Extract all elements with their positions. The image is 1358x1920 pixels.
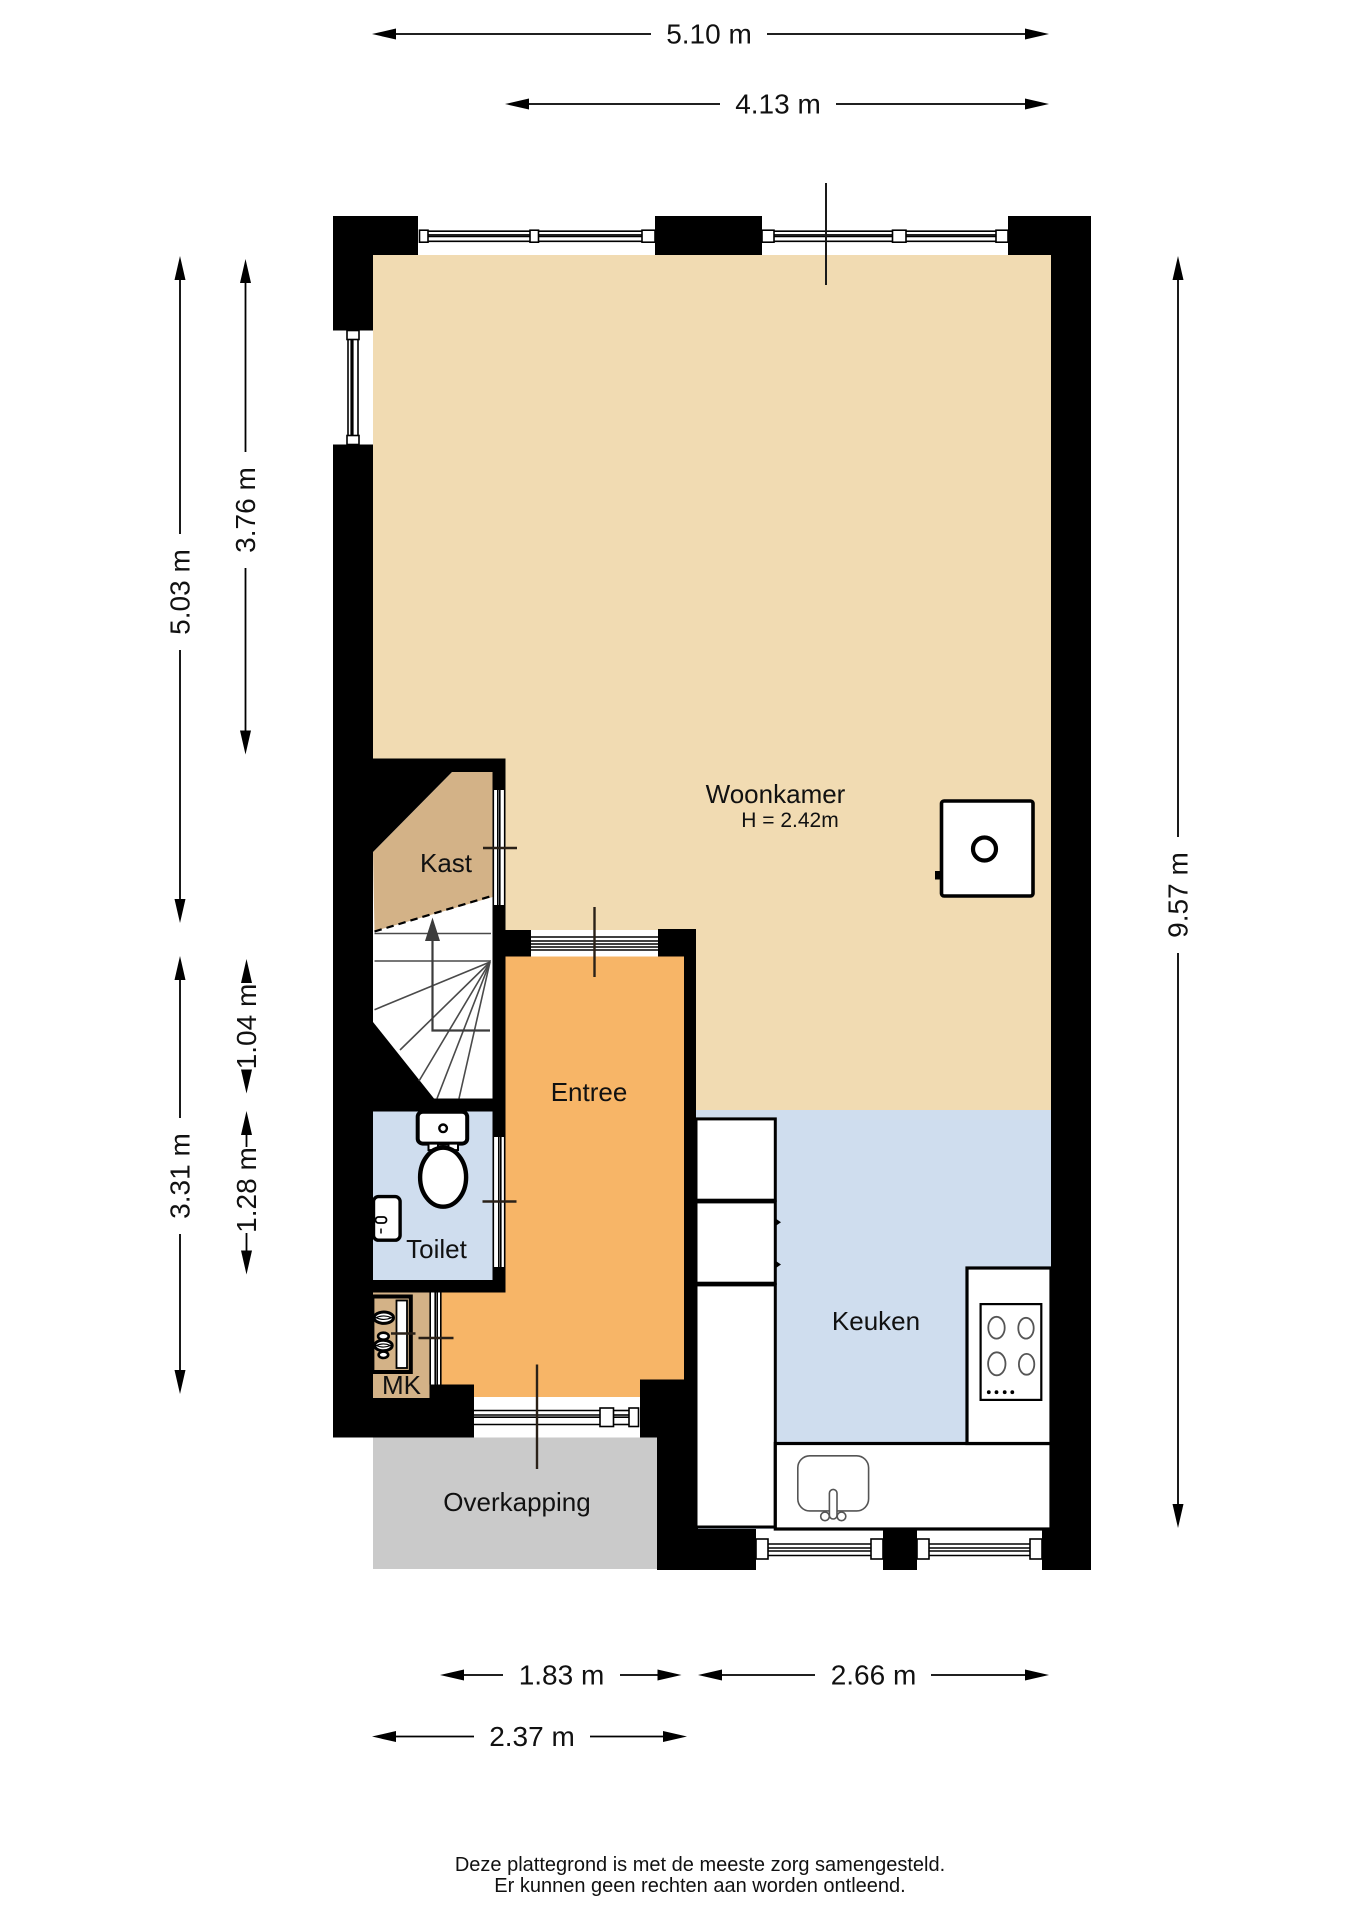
svg-text:5.03 m: 5.03 m bbox=[165, 549, 196, 635]
svg-text:5.10 m: 5.10 m bbox=[666, 19, 752, 50]
svg-text:2.37 m: 2.37 m bbox=[489, 1721, 575, 1752]
svg-text:Kast: Kast bbox=[420, 848, 473, 878]
svg-text:9.57 m: 9.57 m bbox=[1163, 852, 1194, 938]
svg-text:H = 2.42m: H = 2.42m bbox=[741, 809, 838, 832]
svg-text:3.76 m: 3.76 m bbox=[230, 467, 261, 553]
svg-text:Deze plattegrond is met de mee: Deze plattegrond is met de meeste zorg s… bbox=[455, 1854, 945, 1876]
svg-text:Keuken: Keuken bbox=[832, 1306, 920, 1336]
svg-text:2.66 m: 2.66 m bbox=[831, 1660, 917, 1691]
svg-text:4.13 m: 4.13 m bbox=[735, 89, 821, 120]
svg-text:MK: MK bbox=[382, 1370, 422, 1400]
svg-text:Overkapping: Overkapping bbox=[443, 1487, 590, 1517]
svg-text:3.31 m: 3.31 m bbox=[165, 1133, 196, 1219]
svg-text:Er kunnen geen rechten aan wor: Er kunnen geen rechten aan worden ontlee… bbox=[494, 1875, 905, 1897]
svg-text:1.28 m: 1.28 m bbox=[231, 1147, 262, 1233]
svg-text:1.83 m: 1.83 m bbox=[519, 1660, 605, 1691]
svg-text:1.04 m: 1.04 m bbox=[231, 984, 262, 1070]
svg-text:Toilet: Toilet bbox=[406, 1234, 467, 1264]
svg-text:Woonkamer: Woonkamer bbox=[706, 779, 846, 809]
svg-text:Entree: Entree bbox=[551, 1077, 628, 1107]
